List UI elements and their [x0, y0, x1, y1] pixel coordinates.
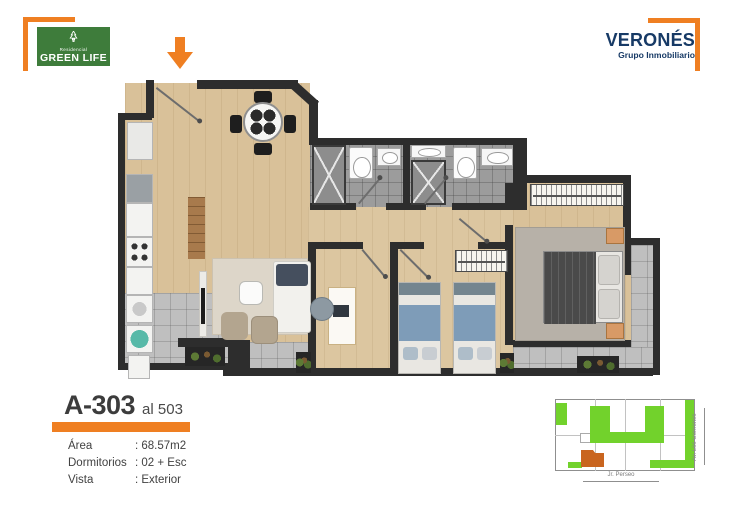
wall-study-top	[308, 242, 363, 249]
kitchen-sink	[126, 295, 153, 323]
wall-master-top	[527, 175, 631, 183]
green-area	[568, 462, 582, 468]
pillow	[598, 289, 620, 319]
dining-chair	[254, 143, 272, 155]
vent-bath2	[411, 145, 446, 158]
street-line-bottom	[583, 481, 659, 482]
floor-plan	[115, 75, 660, 395]
blanket	[399, 305, 440, 341]
tree-icon	[67, 29, 80, 47]
wall-bath-top	[310, 138, 520, 145]
sink-bath1	[377, 148, 401, 166]
pillow	[422, 347, 437, 360]
headboard	[399, 283, 440, 295]
planter	[296, 352, 311, 373]
desk-chair	[310, 297, 334, 321]
pillow	[598, 255, 620, 285]
twin-bed-2	[453, 282, 496, 374]
pillow	[403, 347, 418, 360]
site-key-plan: Jr. Perseo Av. Los Gorriones	[550, 395, 715, 490]
green-area	[590, 406, 610, 433]
sofa-cushions	[276, 264, 308, 286]
wall-master-south	[513, 340, 631, 347]
accent-bar	[52, 422, 190, 432]
spec-value: : 68.57m2	[135, 438, 186, 455]
stove	[126, 237, 153, 267]
laptop	[333, 305, 349, 317]
wall-bath-divider	[403, 143, 410, 207]
armchair	[251, 316, 278, 344]
green-area	[650, 460, 694, 468]
developer-tagline: Grupo Inmobiliario	[598, 50, 695, 60]
dining-table	[243, 102, 283, 142]
unit-specs: Área : 68.57m2 Dormitorios : 02 + Esc Vi…	[68, 438, 186, 489]
wall-master-left	[505, 225, 513, 345]
green-life-logo: Residencial GREEN LIFE	[37, 27, 110, 66]
wall-left	[118, 118, 125, 368]
entrance-arrow-icon	[167, 37, 193, 69]
headboard	[454, 283, 495, 295]
spec-label: Dormitorios	[68, 455, 135, 472]
laundry-sink	[128, 355, 150, 379]
residence-name: GREEN LIFE	[40, 52, 107, 64]
green-area	[556, 403, 567, 425]
spec-label: Vista	[68, 472, 135, 489]
fridge	[126, 174, 153, 203]
spec-value: : 02 + Esc	[135, 455, 186, 472]
sink-bath2	[481, 148, 513, 166]
toilet-bath1	[349, 147, 373, 179]
kitchen-bar	[188, 197, 205, 259]
planter	[500, 353, 514, 373]
wall-bath2-bottom	[452, 203, 517, 210]
spec-label: Área	[68, 438, 135, 455]
dining-chair	[284, 115, 296, 133]
pillow	[477, 347, 492, 360]
duvet	[544, 252, 596, 324]
unit-code: A-303	[64, 390, 135, 420]
developer-logo: VERONÉS Grupo Inmobiliario	[598, 30, 695, 60]
pillow	[458, 347, 473, 360]
twin-bed-1	[398, 282, 441, 374]
green-area	[645, 406, 664, 433]
developer-name: VERONÉS	[598, 30, 695, 50]
spec-value: : Exterior	[135, 472, 186, 489]
street-label-right: Av. Los Gorriones	[692, 407, 698, 467]
nightstand	[606, 228, 624, 244]
wall-bedroom2-top-a	[398, 242, 424, 249]
wall-left-upper	[146, 80, 154, 118]
street-line-right	[704, 408, 705, 465]
planter	[577, 356, 619, 373]
dining-chair	[230, 115, 242, 133]
unit-title: A-303al 503	[64, 390, 183, 421]
street-label-bottom: Jr. Perseo	[583, 472, 659, 478]
blanket	[454, 305, 495, 341]
master-bed	[543, 251, 623, 323]
arrow-shaft	[175, 37, 185, 52]
kitchen-storage	[127, 122, 153, 160]
wall-study-bedroom2-divider	[390, 242, 398, 368]
closet-master	[530, 184, 624, 206]
wall-master-left-stub	[505, 183, 513, 203]
closet-bedroom2	[455, 250, 508, 272]
wall-bath-right	[513, 138, 527, 210]
green-area	[590, 432, 664, 443]
tv-screen	[201, 288, 205, 324]
washing-machine	[126, 325, 153, 353]
arrow-head	[167, 52, 193, 69]
armchair	[221, 312, 248, 340]
coffee-table	[239, 281, 263, 305]
kitchen-counter-a	[126, 203, 153, 237]
wall-laundry-stub	[228, 340, 250, 368]
wall-top	[197, 80, 298, 89]
flyer-page: Residencial GREEN LIFE VERONÉS Grupo Inm…	[0, 0, 730, 516]
planter	[185, 347, 225, 366]
toilet-bath2	[453, 147, 477, 179]
wall-living-balcony	[178, 338, 228, 347]
nightstand	[606, 323, 624, 339]
unit-range: al 503	[142, 401, 183, 418]
wall-outer-right	[653, 238, 660, 375]
kitchen-counter-b	[126, 267, 153, 295]
shower-bath1	[312, 145, 346, 205]
